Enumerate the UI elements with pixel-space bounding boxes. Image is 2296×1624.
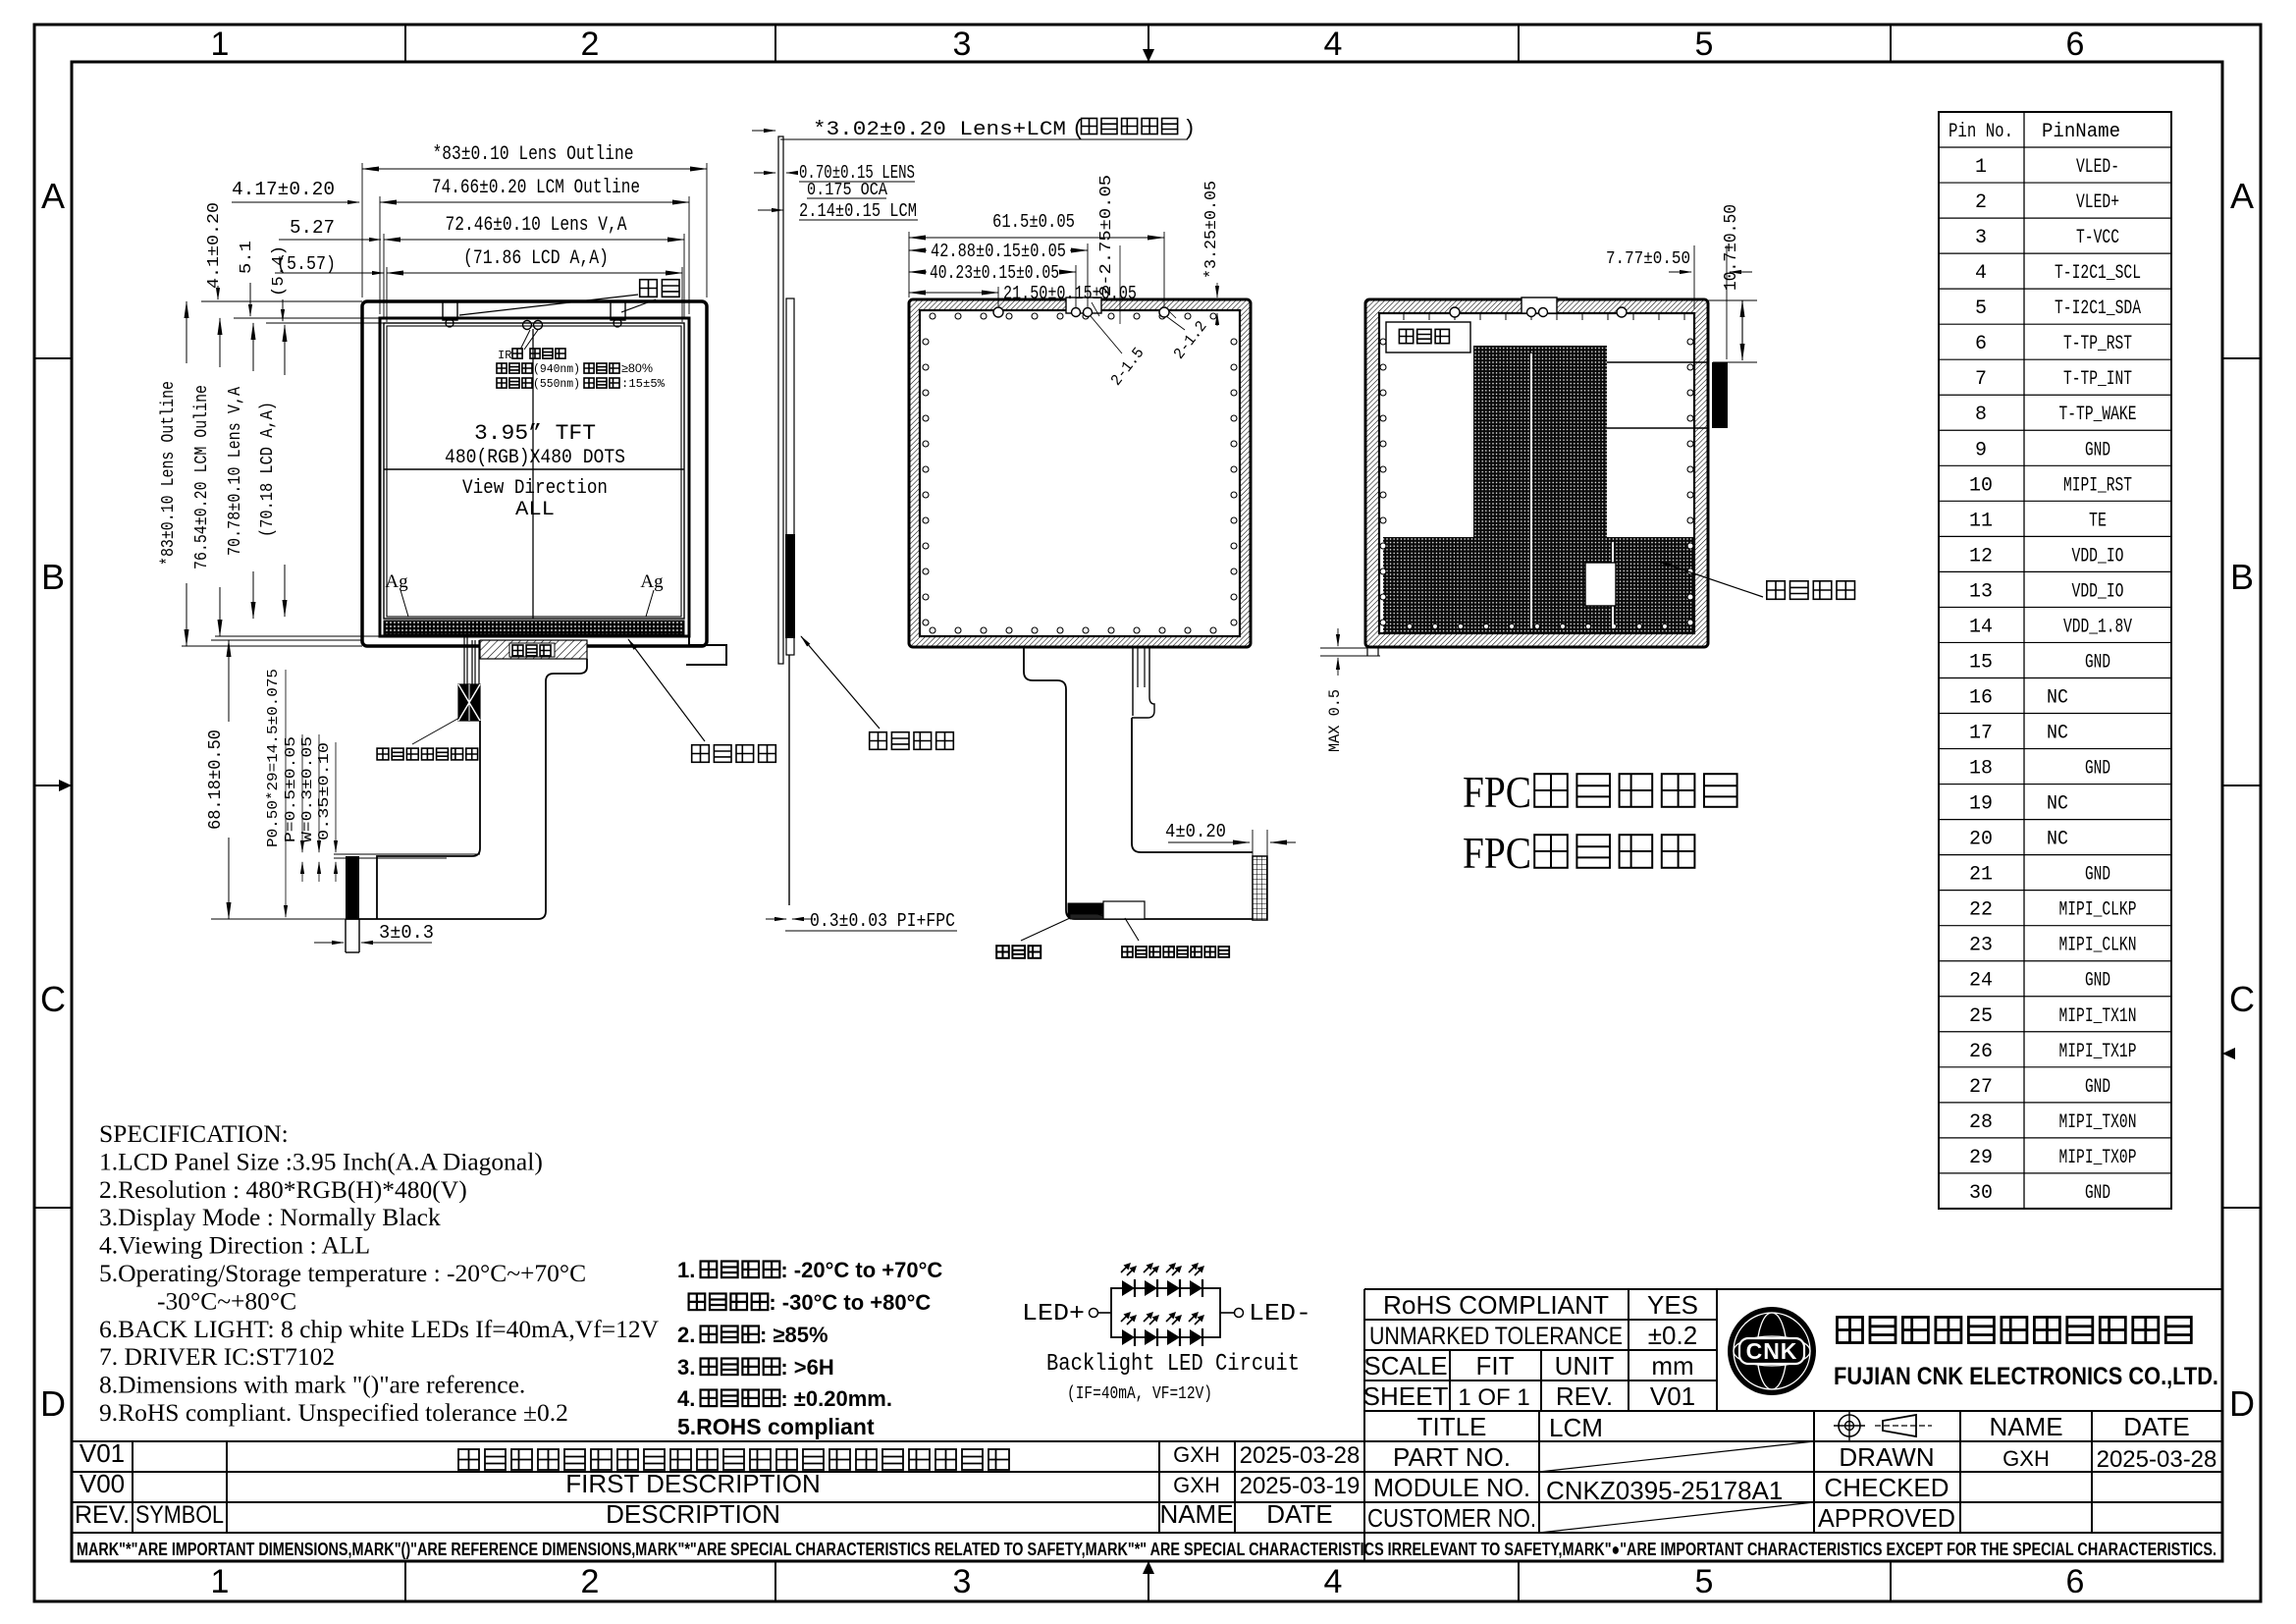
svg-text:CNK: CNK [1746, 1338, 1798, 1364]
svg-text:DESCRIPTION: DESCRIPTION [606, 1499, 780, 1529]
svg-text:42.88±0.15±0.05: 42.88±0.15±0.05 [931, 241, 1066, 262]
svg-text:MIPI_TX0P: MIPI_TX0P [2059, 1147, 2137, 1169]
svg-text:C: C [40, 979, 66, 1019]
svg-text:4.17±0.20: 4.17±0.20 [232, 179, 335, 200]
svg-text:T-TP_RST: T-TP_RST [2063, 333, 2132, 355]
svg-text:TE: TE [2089, 510, 2107, 532]
svg-text:3: 3 [953, 1563, 972, 1600]
svg-text:12: 12 [1969, 545, 1993, 568]
svg-text:0.3±0.03 PI+FPC: 0.3±0.03 PI+FPC [810, 910, 955, 932]
svg-text:NC: NC [2047, 686, 2068, 709]
svg-text:D: D [40, 1383, 66, 1424]
svg-text:GND: GND [2085, 970, 2110, 993]
svg-text:4.: 4. [677, 1386, 695, 1411]
svg-text:P=0.5±0.05: P=0.5±0.05 [283, 736, 299, 842]
svg-text:2025-03-19: 2025-03-19 [1240, 1473, 1361, 1499]
svg-text:7.77±0.50: 7.77±0.50 [1606, 249, 1690, 269]
svg-text:PART NO.: PART NO. [1393, 1442, 1511, 1472]
svg-text:30: 30 [1969, 1182, 1993, 1205]
svg-text:24: 24 [1969, 970, 1993, 993]
svg-text:NC: NC [2047, 793, 2068, 816]
svg-text:2: 2 [1975, 191, 1987, 214]
svg-text:20: 20 [1969, 829, 1993, 851]
svg-text:9.RoHS compliant. Unspecified: 9.RoHS compliant. Unspecified tolerance … [99, 1398, 568, 1427]
svg-text:3.95” TFT: 3.95” TFT [474, 421, 596, 446]
svg-text:Ag: Ag [385, 571, 408, 592]
svg-text:23: 23 [1969, 935, 1993, 957]
svg-text:PinName: PinName [2042, 121, 2120, 143]
svg-text:GXH: GXH [2002, 1446, 2050, 1471]
svg-text:22: 22 [1969, 899, 1993, 922]
svg-text:5.1: 5.1 [238, 241, 256, 274]
svg-text:Ag: Ag [640, 571, 664, 592]
svg-text:8.Dimensions with mark "()"are: 8.Dimensions with mark "()"are reference… [99, 1371, 525, 1399]
svg-text:UNMARKED TOLERANCE: UNMARKED TOLERANCE [1369, 1323, 1623, 1350]
svg-text:5: 5 [1695, 1563, 1714, 1600]
svg-text:T-I2C1_SCL: T-I2C1_SCL [2055, 262, 2141, 285]
svg-text:6: 6 [2066, 26, 2085, 63]
svg-text:MARK"*"ARE IMPORTANT DIMENSION: MARK"*"ARE IMPORTANT DIMENSIONS,MARK"()"… [77, 1540, 2216, 1559]
svg-text:CUSTOMER NO.: CUSTOMER NO. [1367, 1503, 1536, 1533]
svg-text:MIPI_CLKN: MIPI_CLKN [2059, 935, 2137, 957]
svg-text:FPC: FPC [1463, 828, 1531, 878]
svg-text:NC: NC [2047, 723, 2068, 745]
svg-text:4: 4 [1324, 26, 1343, 63]
svg-text:C: C [2229, 979, 2255, 1019]
svg-text:V01: V01 [1650, 1381, 1695, 1411]
svg-text:GND: GND [2085, 864, 2110, 887]
svg-text:FPC: FPC [1463, 767, 1531, 817]
svg-text:CHECKED: CHECKED [1824, 1473, 1949, 1502]
svg-text::15±5%: :15±5% [621, 377, 666, 391]
svg-text:ALL: ALL [515, 499, 555, 521]
svg-text:GND: GND [2085, 758, 2110, 781]
svg-text:Backlight LED Circuit: Backlight LED Circuit [1046, 1351, 1300, 1378]
svg-text:MAX 0.5: MAX 0.5 [1326, 689, 1344, 752]
svg-text:11: 11 [1969, 510, 1993, 532]
svg-text:SPECIFICATION:: SPECIFICATION: [99, 1119, 289, 1148]
svg-text:UNIT: UNIT [1555, 1351, 1615, 1380]
svg-text:V00: V00 [80, 1469, 125, 1498]
svg-text:27: 27 [1969, 1076, 1993, 1099]
svg-text:MIPI_RST: MIPI_RST [2063, 474, 2132, 497]
svg-text:70.78±0.10 Lens V,A: 70.78±0.10 Lens V,A [226, 387, 245, 556]
svg-text:3.: 3. [677, 1355, 695, 1380]
svg-text:2: 2 [581, 26, 600, 63]
svg-text:SHEET: SHEET [1363, 1381, 1449, 1411]
svg-text:74.66±0.20 LCM Outline: 74.66±0.20 LCM Outline [432, 177, 640, 199]
svg-text:4: 4 [1975, 262, 1987, 285]
svg-text:1.LCD Panel Size :3.95 Inch(A.: 1.LCD Panel Size :3.95 Inch(A.A Diagonal… [99, 1147, 543, 1175]
svg-text:2.14±0.15 LCM: 2.14±0.15 LCM [799, 200, 917, 222]
svg-text:5.Operating/Storage temperatur: 5.Operating/Storage temperature : -20°C~… [99, 1259, 586, 1287]
svg-text:9: 9 [1975, 439, 1987, 461]
svg-text:B: B [2230, 557, 2254, 597]
svg-text:28: 28 [1969, 1111, 1993, 1134]
svg-text:: -20°C to +70°C: : -20°C to +70°C [780, 1258, 942, 1282]
svg-text:(550nm): (550nm) [533, 377, 580, 391]
svg-text:1: 1 [211, 26, 230, 63]
svg-text:3.Display Mode : Normally Blac: 3.Display Mode : Normally Black [99, 1203, 441, 1231]
svg-text:0.35±0.10: 0.35±0.10 [316, 742, 333, 840]
svg-text:4±0.20: 4±0.20 [1165, 821, 1226, 842]
svg-text:2: 2 [581, 1563, 600, 1600]
svg-text:RoHS COMPLIANT: RoHS COMPLIANT [1383, 1290, 1609, 1320]
svg-text:5: 5 [1695, 26, 1714, 63]
svg-text:SCALE: SCALE [1363, 1351, 1447, 1380]
svg-text:4.1±0.20: 4.1±0.20 [205, 202, 224, 289]
svg-text:±0.2: ±0.2 [1648, 1321, 1697, 1350]
svg-text:FUJIAN CNK ELECTRONICS CO.,LTD: FUJIAN CNK ELECTRONICS CO.,LTD. [1834, 1363, 2218, 1390]
svg-text:MIPI_CLKP: MIPI_CLKP [2059, 899, 2137, 922]
svg-text:*3.25±0.05: *3.25±0.05 [1202, 181, 1221, 279]
svg-text:T-I2C1_SDA: T-I2C1_SDA [2055, 298, 2141, 320]
svg-text:480(RGB)X480 DOTS: 480(RGB)X480 DOTS [445, 447, 625, 469]
svg-text:DATE: DATE [1266, 1499, 1332, 1529]
svg-text:LED+: LED+ [1022, 1301, 1085, 1327]
svg-text:GND: GND [2085, 1182, 2110, 1205]
svg-text:1.: 1. [677, 1258, 695, 1282]
svg-text:GXH: GXH [1173, 1473, 1220, 1497]
svg-text:YES: YES [1647, 1290, 1698, 1320]
svg-text:10.7±0.50: 10.7±0.50 [1722, 204, 1741, 291]
svg-text:61.5±0.05: 61.5±0.05 [992, 211, 1075, 233]
svg-text:(71.86 LCD A,A): (71.86 LCD A,A) [463, 247, 609, 270]
svg-text:: >6H: : >6H [780, 1355, 833, 1380]
svg-text:MIPI_TX1N: MIPI_TX1N [2059, 1005, 2137, 1028]
svg-text:3: 3 [1975, 227, 1987, 249]
svg-text:A: A [41, 176, 65, 216]
svg-text:: ±0.20mm.: : ±0.20mm. [780, 1386, 892, 1411]
svg-text:4: 4 [1324, 1563, 1343, 1600]
svg-text:NC: NC [2047, 829, 2068, 851]
svg-text:6: 6 [1975, 333, 1987, 355]
svg-text:29: 29 [1969, 1147, 1993, 1169]
svg-text:): ) [1183, 117, 1196, 141]
svg-text:VLED+: VLED+ [2076, 191, 2119, 214]
svg-text:IR: IR [498, 349, 511, 362]
svg-text:GXH: GXH [1173, 1442, 1220, 1467]
svg-text:TITLE: TITLE [1417, 1412, 1487, 1441]
svg-text:MIPI_TX1P: MIPI_TX1P [2059, 1041, 2137, 1063]
svg-text:Pin No.: Pin No. [1949, 121, 2013, 143]
svg-text:≥80%: ≥80% [621, 361, 653, 375]
svg-text:*3.02±0.20 Lens+LCM: *3.02±0.20 Lens+LCM [813, 119, 1066, 141]
svg-text:NAME: NAME [1989, 1412, 2062, 1441]
svg-text:1: 1 [1975, 156, 1987, 179]
svg-text:6: 6 [2066, 1563, 2085, 1600]
svg-text:T-TP_WAKE: T-TP_WAKE [2059, 404, 2137, 426]
svg-text:21: 21 [1969, 864, 1993, 887]
svg-text:View Direction: View Direction [462, 477, 608, 500]
svg-text:2025-03-28: 2025-03-28 [2097, 1446, 2217, 1473]
svg-text:APPROVED: APPROVED [1818, 1503, 1955, 1533]
svg-text:25: 25 [1969, 1005, 1993, 1028]
svg-text:68.18±0.50: 68.18±0.50 [206, 730, 226, 830]
svg-text:A: A [2230, 176, 2254, 216]
svg-text:17: 17 [1969, 723, 1993, 745]
svg-text:D: D [2229, 1383, 2255, 1424]
svg-text:(5.4): (5.4) [270, 245, 289, 297]
svg-text:0.175 OCA: 0.175 OCA [807, 181, 887, 200]
svg-text:MODULE NO.: MODULE NO. [1373, 1473, 1530, 1502]
svg-text:: -30°C to +80°C: : -30°C to +80°C [769, 1290, 931, 1315]
svg-text:10: 10 [1969, 474, 1993, 497]
svg-text:*83±0.10 Lens Outline: *83±0.10 Lens Outline [433, 143, 634, 166]
svg-text:NAME: NAME [1159, 1499, 1233, 1529]
svg-text:SYMBOL: SYMBOL [135, 1501, 224, 1529]
svg-text:72.46±0.10 Lens V,A: 72.46±0.10 Lens V,A [446, 214, 627, 237]
svg-text:8: 8 [1975, 404, 1987, 426]
svg-text:6.BACK LIGHT: 8 chip white LED: 6.BACK LIGHT: 8 chip white LEDs If=40mA,… [99, 1315, 660, 1343]
svg-text:2025-03-28: 2025-03-28 [1240, 1442, 1361, 1469]
svg-text:1: 1 [211, 1563, 230, 1600]
svg-text:T-TP_INT: T-TP_INT [2063, 368, 2132, 391]
svg-text:LCM: LCM [1549, 1413, 1603, 1442]
svg-text:B: B [41, 557, 65, 597]
svg-text:FIT: FIT [1476, 1351, 1515, 1380]
svg-text:CNKZ0395-25178A1: CNKZ0395-25178A1 [1546, 1476, 1783, 1505]
svg-text:P0.50*29=14.5±0.075: P0.50*29=14.5±0.075 [265, 669, 282, 847]
svg-text:FIRST DESCRIPTION: FIRST DESCRIPTION [565, 1469, 821, 1498]
svg-text:(: ( [1072, 117, 1085, 141]
svg-text:16: 16 [1969, 686, 1993, 709]
svg-text:VDD_IO: VDD_IO [2072, 545, 2124, 568]
svg-text:mm: mm [1651, 1351, 1693, 1380]
svg-text:LED-: LED- [1249, 1301, 1311, 1327]
svg-text:(70.18 LCD A,A): (70.18 LCD A,A) [258, 402, 278, 537]
svg-text:: ≥85%: : ≥85% [760, 1323, 828, 1347]
svg-text:REV.: REV. [1556, 1381, 1613, 1411]
svg-text:(IF=40mA, VF=12V): (IF=40mA, VF=12V) [1067, 1384, 1212, 1404]
svg-text:21.50±0.15±0.05: 21.50±0.15±0.05 [1003, 283, 1137, 304]
svg-text:40.23±0.15±0.05: 40.23±0.15±0.05 [930, 262, 1059, 284]
svg-text:26: 26 [1969, 1041, 1993, 1063]
svg-text:T-VCC: T-VCC [2076, 227, 2119, 249]
svg-text:4.Viewing Direction : ALL: 4.Viewing Direction : ALL [99, 1231, 370, 1260]
svg-text:GND: GND [2085, 1076, 2110, 1099]
svg-text:VDD_1.8V: VDD_1.8V [2063, 616, 2132, 638]
svg-text:3: 3 [953, 26, 972, 63]
svg-text:76.54±0.20 LCM Ouline: 76.54±0.20 LCM Ouline [192, 385, 212, 569]
svg-text:(940nm): (940nm) [533, 362, 580, 376]
svg-text:*83±0.10 Lens Outline: *83±0.10 Lens Outline [159, 381, 179, 566]
svg-text:5.27: 5.27 [290, 217, 335, 239]
svg-text:V01: V01 [80, 1438, 125, 1468]
svg-text:1 OF 1: 1 OF 1 [1458, 1384, 1529, 1411]
svg-text:5.ROHS compliant: 5.ROHS compliant [677, 1414, 875, 1439]
svg-text:14: 14 [1969, 616, 1993, 638]
svg-text:GND: GND [2085, 651, 2110, 674]
svg-text:7: 7 [1975, 368, 1987, 391]
svg-text:DATE: DATE [2123, 1412, 2189, 1441]
svg-text:2-2.75±0.05: 2-2.75±0.05 [1097, 175, 1116, 297]
svg-text:15: 15 [1969, 651, 1993, 674]
svg-text:3±0.3: 3±0.3 [379, 922, 434, 944]
svg-text:5: 5 [1975, 298, 1987, 320]
svg-text:DRAWN: DRAWN [1839, 1442, 1934, 1472]
svg-text:VLED-: VLED- [2076, 156, 2119, 179]
svg-text:19: 19 [1969, 793, 1993, 816]
svg-text:18: 18 [1969, 758, 1993, 781]
svg-text:REV.: REV. [75, 1501, 130, 1529]
svg-text:2.: 2. [677, 1323, 695, 1347]
svg-text:MIPI_TX0N: MIPI_TX0N [2059, 1111, 2137, 1134]
svg-text:7. DRIVER IC:ST7102: 7. DRIVER IC:ST7102 [99, 1342, 335, 1371]
svg-text:VDD_IO: VDD_IO [2072, 580, 2124, 603]
svg-text:2.Resolution : 480*RGB(H)*480(: 2.Resolution : 480*RGB(H)*480(V) [99, 1175, 467, 1204]
svg-text:GND: GND [2085, 439, 2110, 461]
svg-text:13: 13 [1969, 580, 1993, 603]
svg-text:-30°C~+80°C: -30°C~+80°C [157, 1286, 296, 1315]
svg-text:W=0.3±0.05: W=0.3±0.05 [299, 736, 316, 842]
